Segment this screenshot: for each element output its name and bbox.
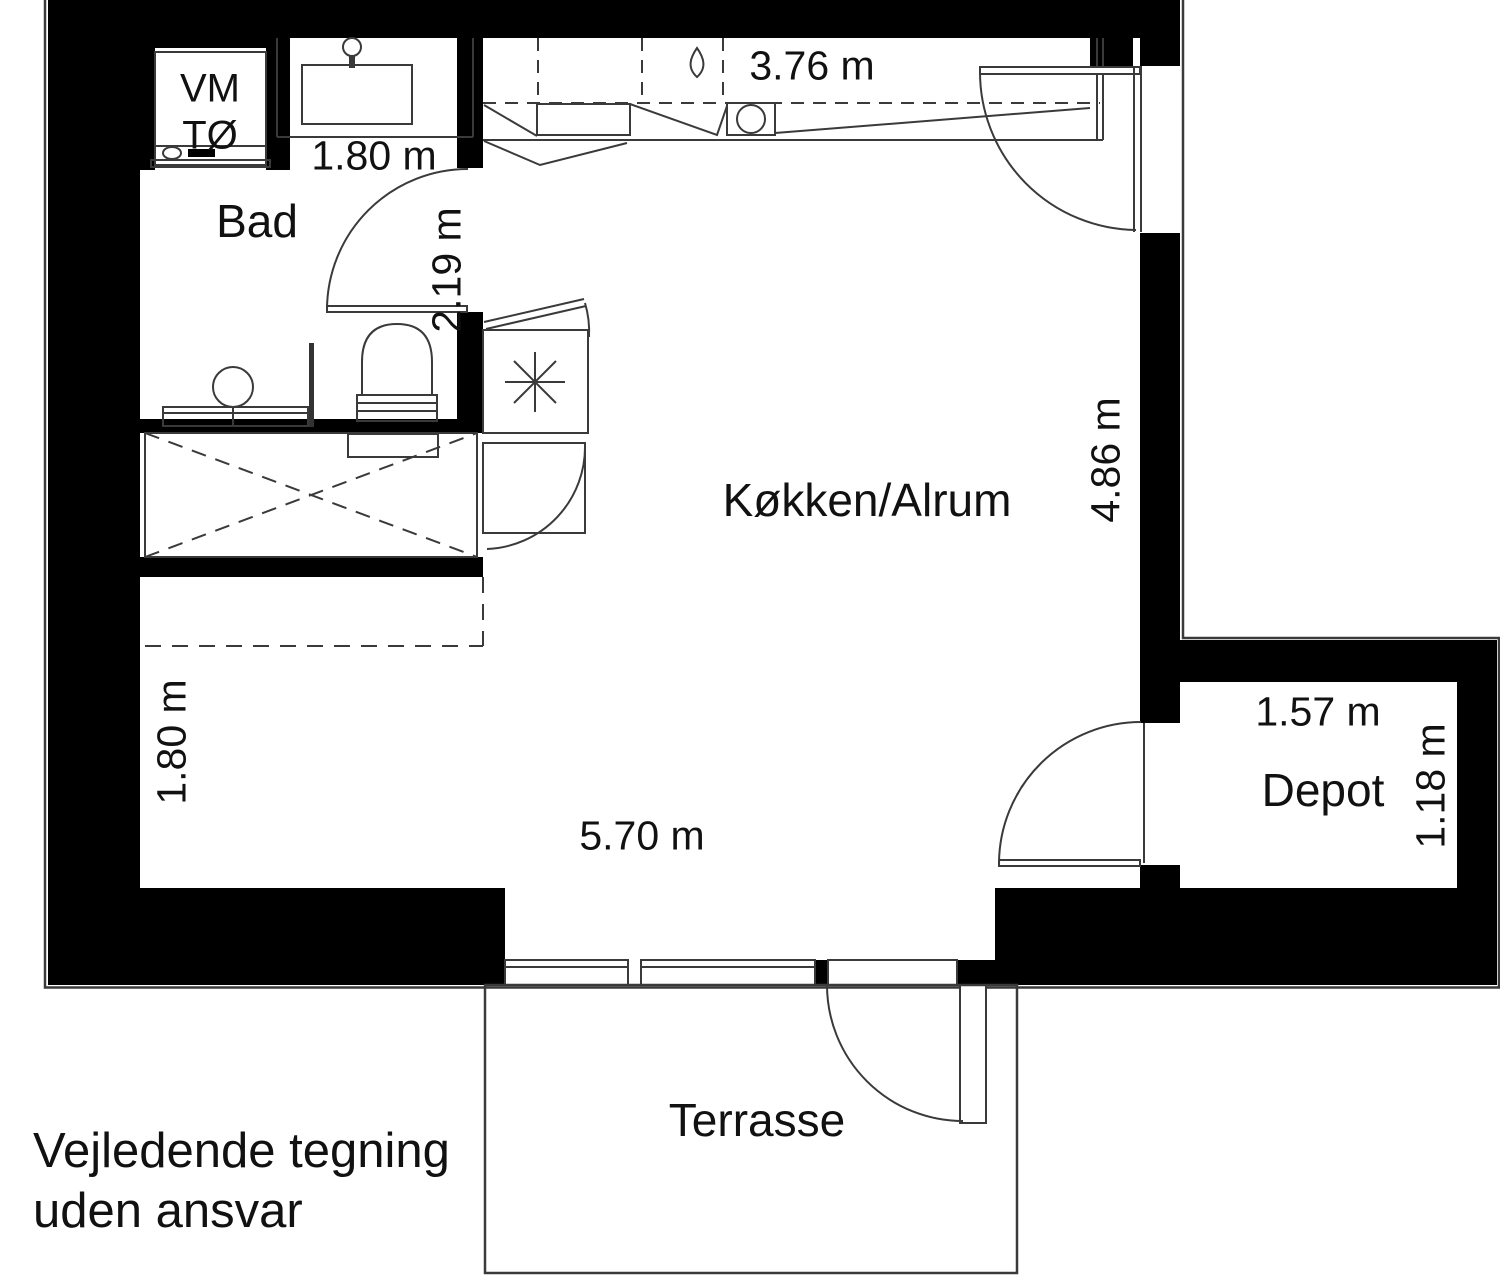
dim-bathroom-width: 1.80 m [311,133,436,180]
dim-bathroom-depth: 2.19 m [424,207,471,332]
washing-machine-label: VM [180,67,240,112]
terrace-door-opening [828,960,957,985]
kitchen-sink [727,103,775,135]
disclaimer-line-2: uden ansvar [33,1182,450,1242]
entry-dashed-zone [145,577,483,646]
room-label-storage: Depot [1262,763,1385,817]
room-label-bathroom: Bad [216,194,298,248]
dim-entry-width: 1.80 m [149,679,196,804]
tall-cabinet-fridge [483,299,589,549]
shower-glass [309,343,314,427]
window-1 [505,960,628,985]
tumble-dryer-label: TØ [182,114,238,159]
faucet-icon [691,48,704,77]
shower [163,343,314,427]
dim-livingroom-width: 5.70 m [579,813,704,860]
entrance-door [980,66,1141,232]
window-2 [641,960,815,985]
floor-plan-drawing [0,0,1500,1276]
disclaimer-text: Vejledende tegning uden ansvar [33,1122,450,1242]
room-label-kitchen: Køkken/Alrum [723,473,1012,527]
windows [505,960,957,985]
dim-storage-width: 1.57 m [1255,689,1380,736]
room-label-terrace: Terrasse [669,1093,845,1147]
dim-kitchen-width: 3.76 m [749,43,874,90]
bathroom-sink [277,38,473,137]
storage-door [999,722,1144,866]
dim-livingroom-depth: 4.86 m [1083,397,1130,522]
wardrobe-x-box [145,433,477,557]
toilet [357,324,437,421]
fridge-star-icon [505,352,565,412]
floor-plan: VM TØ Bad Køkken/Alrum Depot Terrasse 1.… [0,0,1500,1276]
terrace-door [827,985,986,1123]
dim-storage-depth: 1.18 m [1408,723,1455,848]
disclaimer-line-1: Vejledende tegning [33,1122,450,1182]
